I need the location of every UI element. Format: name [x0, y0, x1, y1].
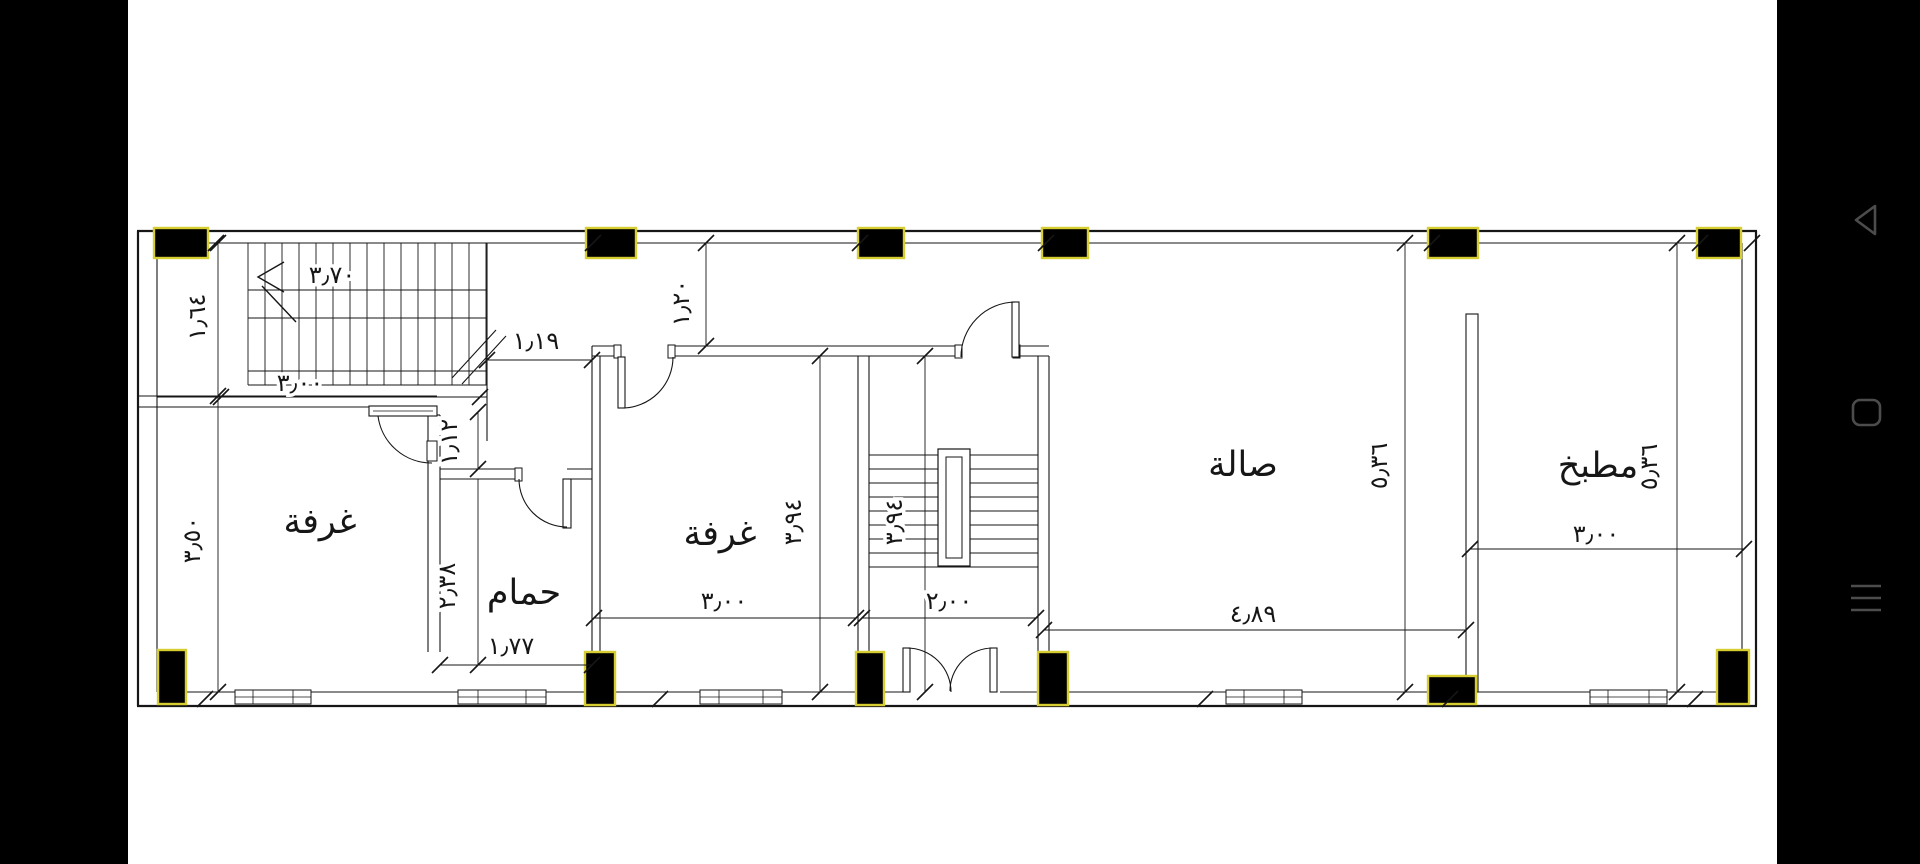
dim-room2-width: ٣٫٠٠	[701, 587, 747, 615]
recents-icon	[1848, 394, 1884, 430]
entrance-door-right-swing	[950, 648, 993, 691]
dim-stairs-width: ٣٫٧٠	[309, 261, 355, 289]
room2-door-swing	[622, 357, 673, 408]
column	[858, 228, 904, 258]
dim-bathroom-height: ٢٫٣٨	[433, 563, 461, 610]
dim-bathroom-width: ١٫٧٧	[488, 632, 535, 660]
column	[856, 652, 884, 705]
column	[585, 652, 615, 705]
stair-break-lines	[452, 330, 506, 384]
stair-rail-inner	[946, 457, 962, 558]
dimension-ticks	[197, 235, 1760, 707]
device-bezel-left	[0, 0, 128, 864]
bathroom-door-swing	[519, 479, 567, 527]
dim-room2-height: ٣٫٩٤	[779, 499, 807, 545]
hall-door-swing	[961, 302, 1015, 357]
staircase-upper-flight	[248, 243, 487, 385]
entrance-door-left-swing	[907, 648, 951, 692]
dim-corridor-length: ١٫١٩	[513, 327, 559, 355]
label-bedroom-2: غرفة	[683, 514, 756, 554]
android-nav-bar	[1777, 0, 1920, 864]
dim-room1-width: ٣٫٠٠	[277, 369, 323, 397]
column	[1697, 228, 1741, 258]
window-room2	[700, 690, 782, 704]
column	[158, 650, 186, 704]
column	[1428, 676, 1476, 704]
hall-door-panel	[1012, 302, 1019, 357]
dim-room1-height: ٣٫٥٠	[178, 517, 206, 563]
room2-door-panel	[618, 357, 625, 408]
dim-corridor-width: ١٫١٢	[435, 419, 463, 465]
menu-button[interactable]	[1848, 580, 1884, 616]
bathroom-door-panel	[563, 479, 571, 528]
dim-stairwell-height: ٣٫٩٤	[880, 499, 908, 545]
window-hall	[1226, 690, 1302, 704]
window-kitchen	[1590, 690, 1667, 704]
recents-button[interactable]	[1848, 394, 1884, 430]
window-room1-left	[235, 690, 311, 704]
label-hall: صالة	[1208, 445, 1278, 485]
column	[154, 228, 208, 258]
column	[1042, 228, 1088, 258]
dim-top-strip-height: ١٫٢٠	[667, 280, 695, 326]
column	[1717, 650, 1749, 704]
dim-hall-width: ٤٫٨٩	[1230, 600, 1276, 628]
dim-entry-depth: ١٫٦٤	[183, 294, 211, 340]
entrance-door-right-panel	[990, 648, 997, 692]
column	[1428, 228, 1478, 258]
dim-hall-height: ٥٫٣٦	[1365, 443, 1393, 489]
label-bedroom-1: غرفة	[283, 502, 356, 542]
column	[1038, 652, 1068, 705]
back-icon	[1848, 202, 1884, 238]
dim-kitchen-height: ٥٫٣٦	[1635, 444, 1663, 490]
menu-icon	[1848, 580, 1884, 616]
label-bathroom: حمام	[487, 573, 561, 613]
label-kitchen: مطبخ	[1558, 446, 1639, 486]
dim-kitchen-width: ٣٫٠٠	[1573, 520, 1619, 548]
phone-screen: ٣٫٧٠ ١٫١٩ ٣٫٠٠ ٣٫٠٠ ٢٫٠٠ ٤٫٨٩ ٣٫٠٠ ١٫٧٧ …	[0, 0, 1920, 864]
entrance-door-left-panel	[903, 648, 910, 692]
back-button[interactable]	[1848, 202, 1884, 238]
stair-direction-arrow	[258, 262, 296, 322]
dim-stairwell-width: ٢٫٠٠	[926, 587, 972, 615]
window-room1-right	[458, 690, 546, 704]
interior-walls	[139, 243, 1049, 652]
room1-door-swing	[378, 416, 432, 463]
floor-plan-drawing: ٣٫٧٠ ١٫١٩ ٣٫٠٠ ٣٫٠٠ ٢٫٠٠ ٤٫٨٩ ٣٫٠٠ ١٫٧٧ …	[0, 0, 1920, 864]
hall-kitchen-partition-wall	[1466, 314, 1478, 692]
